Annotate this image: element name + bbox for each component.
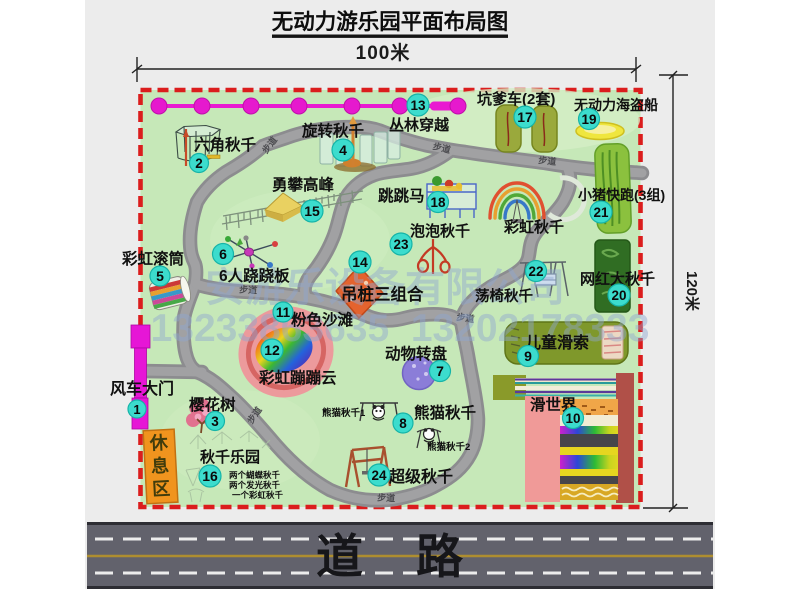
svg-text:6: 6 xyxy=(219,246,227,262)
svg-text:熊猫秋千2: 熊猫秋千2 xyxy=(427,441,470,453)
svg-text:彩虹滚筒: 彩虹滚筒 xyxy=(121,249,184,268)
svg-text:坑爹车(2套): 坑爹车(2套) xyxy=(477,90,555,108)
svg-text:樱花树: 樱花树 xyxy=(189,395,236,414)
svg-text:19: 19 xyxy=(581,112,596,127)
svg-text:区: 区 xyxy=(152,479,171,500)
svg-text:步道: 步道 xyxy=(377,492,396,504)
svg-text:12: 12 xyxy=(264,342,280,358)
svg-text:吊桩三组合: 吊桩三组合 xyxy=(341,284,424,304)
svg-text:5: 5 xyxy=(156,268,164,284)
svg-text:23: 23 xyxy=(393,237,409,252)
svg-text:风车大门: 风车大门 xyxy=(110,379,174,398)
svg-text:泡泡秋千: 泡泡秋千 xyxy=(410,222,470,240)
svg-text:路: 路 xyxy=(416,530,464,583)
svg-text:六角秋千: 六角秋千 xyxy=(194,135,257,154)
svg-text:15: 15 xyxy=(304,203,320,219)
svg-text:120米: 120米 xyxy=(683,271,701,312)
svg-text:道: 道 xyxy=(316,530,363,583)
svg-text:18: 18 xyxy=(430,195,446,210)
svg-text:2: 2 xyxy=(195,156,203,171)
svg-text:14: 14 xyxy=(352,254,368,270)
svg-text:超级秋千: 超级秋千 xyxy=(388,467,453,486)
svg-text:休: 休 xyxy=(148,432,169,454)
svg-text:1: 1 xyxy=(133,402,140,417)
svg-text:11: 11 xyxy=(276,305,291,320)
svg-text:100米: 100米 xyxy=(356,41,411,64)
svg-text:步道: 步道 xyxy=(538,154,557,167)
svg-text:7: 7 xyxy=(436,363,444,379)
svg-text:3: 3 xyxy=(211,414,219,429)
svg-text:秋千乐园: 秋千乐园 xyxy=(200,448,260,466)
svg-text:无动力游乐园平面布局图: 无动力游乐园平面布局图 xyxy=(272,9,509,34)
svg-text:24: 24 xyxy=(371,468,387,483)
svg-text:22: 22 xyxy=(528,264,543,279)
svg-text:13: 13 xyxy=(410,98,426,113)
svg-text:8: 8 xyxy=(399,416,407,431)
svg-text:21: 21 xyxy=(593,205,609,220)
svg-text:丛林穿越: 丛林穿越 xyxy=(389,116,450,134)
svg-text:息: 息 xyxy=(150,455,169,477)
svg-text:旋转秋千: 旋转秋千 xyxy=(301,121,365,140)
svg-text:彩虹秋千: 彩虹秋千 xyxy=(503,218,564,236)
svg-text:10: 10 xyxy=(565,411,580,426)
svg-text:6人跷跷板: 6人跷跷板 xyxy=(219,266,290,285)
svg-text:荡椅秋千: 荡椅秋千 xyxy=(475,287,533,305)
svg-text:16: 16 xyxy=(202,468,218,484)
svg-text:跳跳马: 跳跳马 xyxy=(378,186,425,205)
svg-text:勇攀高峰: 勇攀高峰 xyxy=(272,175,335,194)
svg-text:一个彩虹秋千: 一个彩虹秋千 xyxy=(232,490,284,500)
svg-text:小猪快跑(3组): 小猪快跑(3组) xyxy=(578,187,665,203)
svg-text:粉色沙滩: 粉色沙滩 xyxy=(291,310,354,329)
svg-text:熊猫秋千1: 熊猫秋千1 xyxy=(322,407,366,419)
svg-text:9: 9 xyxy=(524,348,532,364)
svg-text:4: 4 xyxy=(339,142,347,158)
svg-text:熊猫秋千: 熊猫秋千 xyxy=(414,403,477,422)
svg-text:彩虹蹦蹦云: 彩虹蹦蹦云 xyxy=(258,368,337,387)
svg-text:两个蝴蝶秋千: 两个蝴蝶秋千 xyxy=(229,470,281,480)
svg-text:20: 20 xyxy=(611,288,626,303)
svg-text:两个发光秋千: 两个发光秋千 xyxy=(229,480,281,490)
svg-text:17: 17 xyxy=(517,109,533,125)
